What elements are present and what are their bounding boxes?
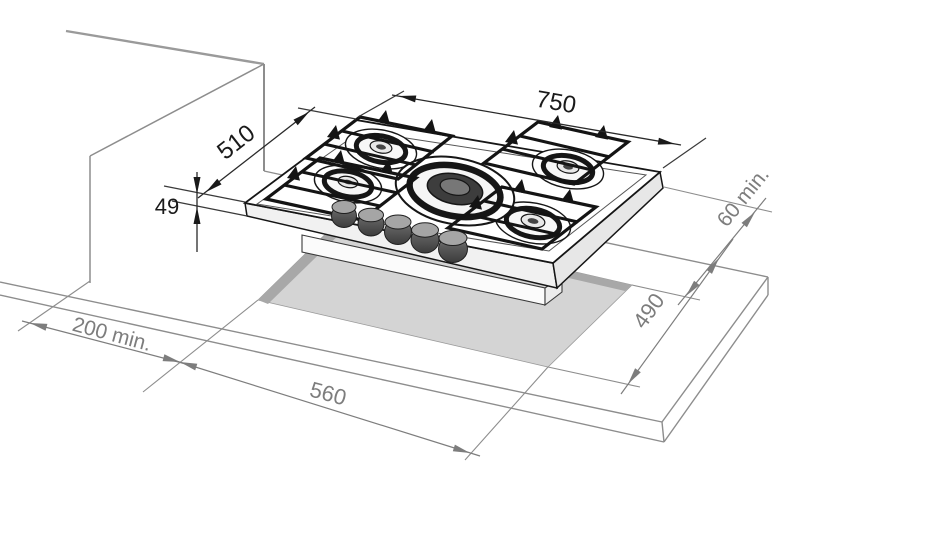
hob-depth-label: 510 xyxy=(212,119,260,165)
diagram-canvas: 750 510 49 200 min. 560 490 xyxy=(0,0,927,560)
knob-1 xyxy=(332,201,357,228)
cutout-width-label: 560 xyxy=(307,377,349,411)
knob-5 xyxy=(439,231,468,263)
hob-height-label: 49 xyxy=(155,194,179,219)
installation-diagram: 750 510 49 200 min. 560 490 xyxy=(0,0,927,560)
hob-width-label: 750 xyxy=(534,86,578,120)
countertop-front-corner xyxy=(662,422,664,442)
rear-clearance-label: 60 min. xyxy=(713,163,774,231)
countertop-right-edge xyxy=(662,277,768,422)
knob-2 xyxy=(358,208,384,236)
dimension-hob-height-49: 49 xyxy=(155,172,247,252)
knob-3 xyxy=(385,215,412,245)
countertop-right-bottom-edge xyxy=(664,295,768,442)
dimension-rear-clearance-60: 60 min. xyxy=(664,163,774,305)
dimension-side-clearance-200: 200 min. xyxy=(18,281,186,364)
countertop-back-edge-right xyxy=(584,238,768,277)
cutout-depth-label: 490 xyxy=(628,289,670,333)
knob-4 xyxy=(411,223,439,253)
